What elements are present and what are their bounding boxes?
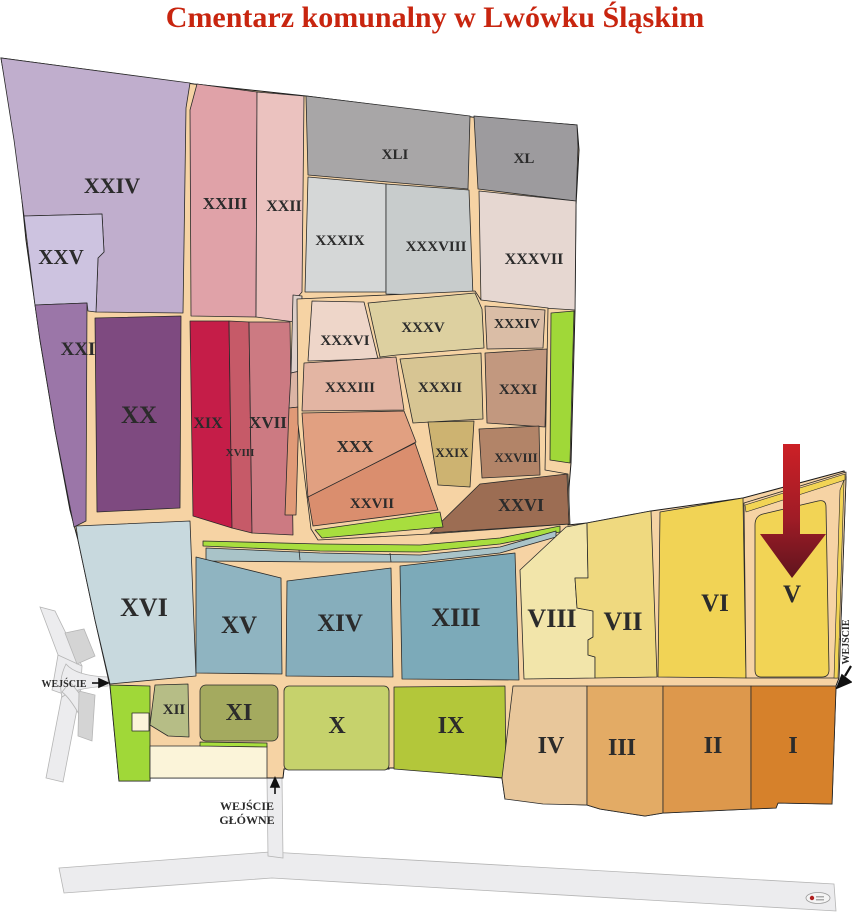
svg-text:XVIII: XVIII xyxy=(226,447,255,459)
svg-text:XL: XL xyxy=(514,151,535,167)
svg-text:XIX: XIX xyxy=(193,415,223,432)
svg-text:GŁÓWNE: GŁÓWNE xyxy=(219,813,274,827)
svg-text:XXI: XXI xyxy=(61,339,96,360)
svg-text:XXXII: XXXII xyxy=(418,380,462,396)
svg-text:VIII: VIII xyxy=(527,604,576,633)
svg-text:IX: IX xyxy=(438,713,465,739)
svg-text:X: X xyxy=(328,713,346,739)
svg-text:XXV: XXV xyxy=(38,245,84,269)
svg-text:XX: XX xyxy=(121,402,157,429)
svg-text:I: I xyxy=(788,733,797,759)
svg-text:XXXVIII: XXXVIII xyxy=(406,239,467,255)
svg-text:XXVI: XXVI xyxy=(498,495,544,515)
svg-text:WEJŚCIE: WEJŚCIE xyxy=(41,678,86,690)
svg-text:IV: IV xyxy=(538,733,565,759)
svg-text:XV: XV xyxy=(221,612,257,639)
svg-text:WEJŚCIE: WEJŚCIE xyxy=(840,619,852,664)
svg-text:V: V xyxy=(783,581,801,608)
svg-text:WEJŚCIE: WEJŚCIE xyxy=(220,799,274,813)
svg-text:XII: XII xyxy=(163,702,186,718)
svg-text:XIV: XIV xyxy=(317,610,363,637)
svg-text:XXXIV: XXXIV xyxy=(494,317,540,332)
svg-text:XLI: XLI xyxy=(382,147,409,163)
svg-text:VII: VII xyxy=(603,607,642,636)
svg-text:XXIV: XXIV xyxy=(84,173,140,198)
svg-text:II: II xyxy=(704,733,723,759)
svg-text:XXII: XXII xyxy=(266,198,302,215)
svg-text:XXX: XXX xyxy=(337,437,375,456)
svg-text:XXXVII: XXXVII xyxy=(505,251,564,268)
svg-text:XXXV: XXXV xyxy=(401,320,444,336)
svg-text:XXIX: XXIX xyxy=(435,445,469,460)
svg-text:XXVIII: XXVIII xyxy=(494,450,537,465)
svg-text:VI: VI xyxy=(701,590,729,617)
svg-text:XIII: XIII xyxy=(431,603,480,632)
svg-text:XI: XI xyxy=(226,700,253,726)
svg-text:XVII: XVII xyxy=(249,413,287,432)
svg-text:XXVII: XXVII xyxy=(350,496,394,512)
svg-text:XXXI: XXXI xyxy=(499,382,537,398)
svg-text:Cmentarz komunalny w Lwówku Śl: Cmentarz komunalny w Lwówku Śląskim xyxy=(166,1,704,34)
svg-text:XXIII: XXIII xyxy=(203,194,248,213)
svg-text:XXXVI: XXXVI xyxy=(320,333,369,349)
svg-text:III: III xyxy=(608,735,636,761)
svg-text:XXXIX: XXXIX xyxy=(315,233,364,249)
svg-text:XXXIII: XXXIII xyxy=(325,380,375,396)
svg-text:XVI: XVI xyxy=(120,593,168,622)
